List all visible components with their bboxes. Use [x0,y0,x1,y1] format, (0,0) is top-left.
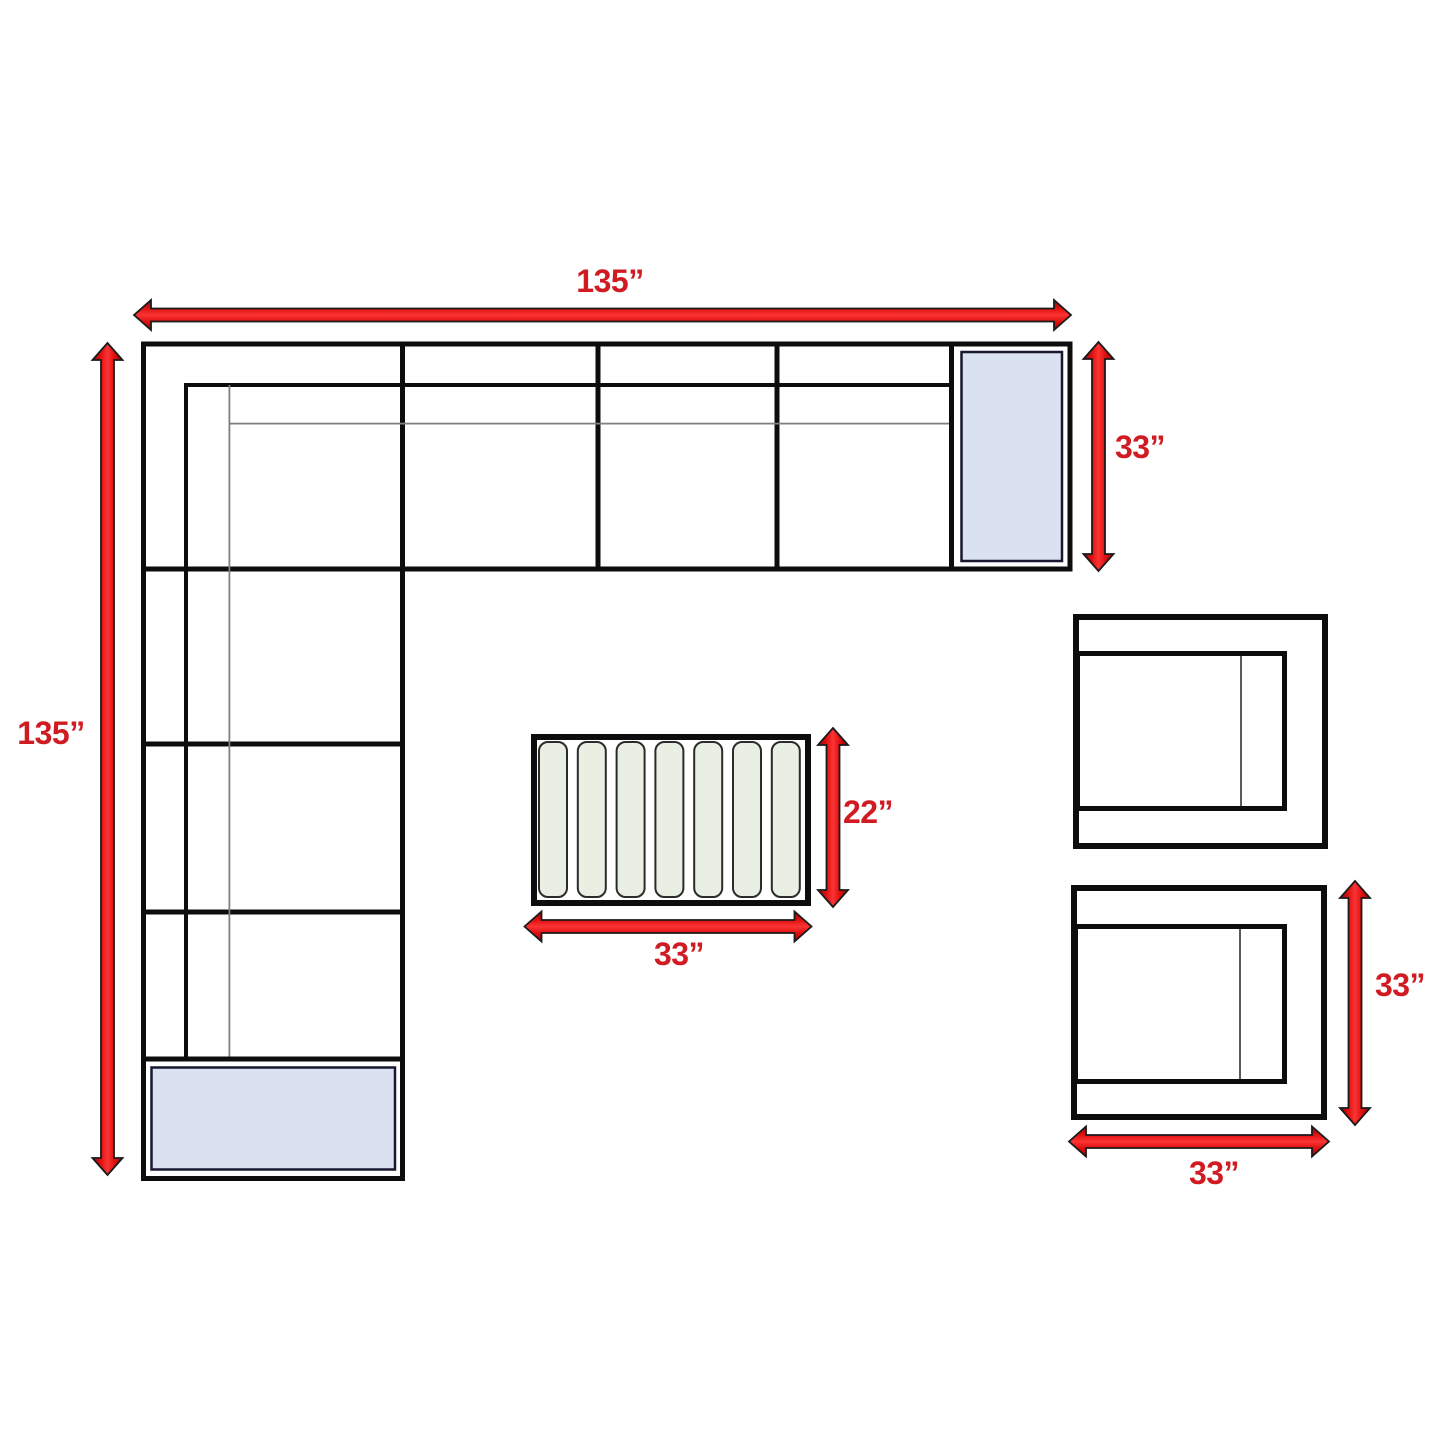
svg-text:33”: 33” [1189,1155,1239,1191]
svg-text:135”: 135” [576,263,643,299]
svg-text:33”: 33” [1115,429,1165,465]
svg-text:33”: 33” [654,936,704,972]
svg-text:135”: 135” [17,715,84,751]
svg-text:22”: 22” [843,794,893,830]
svg-text:33”: 33” [1375,967,1425,1003]
